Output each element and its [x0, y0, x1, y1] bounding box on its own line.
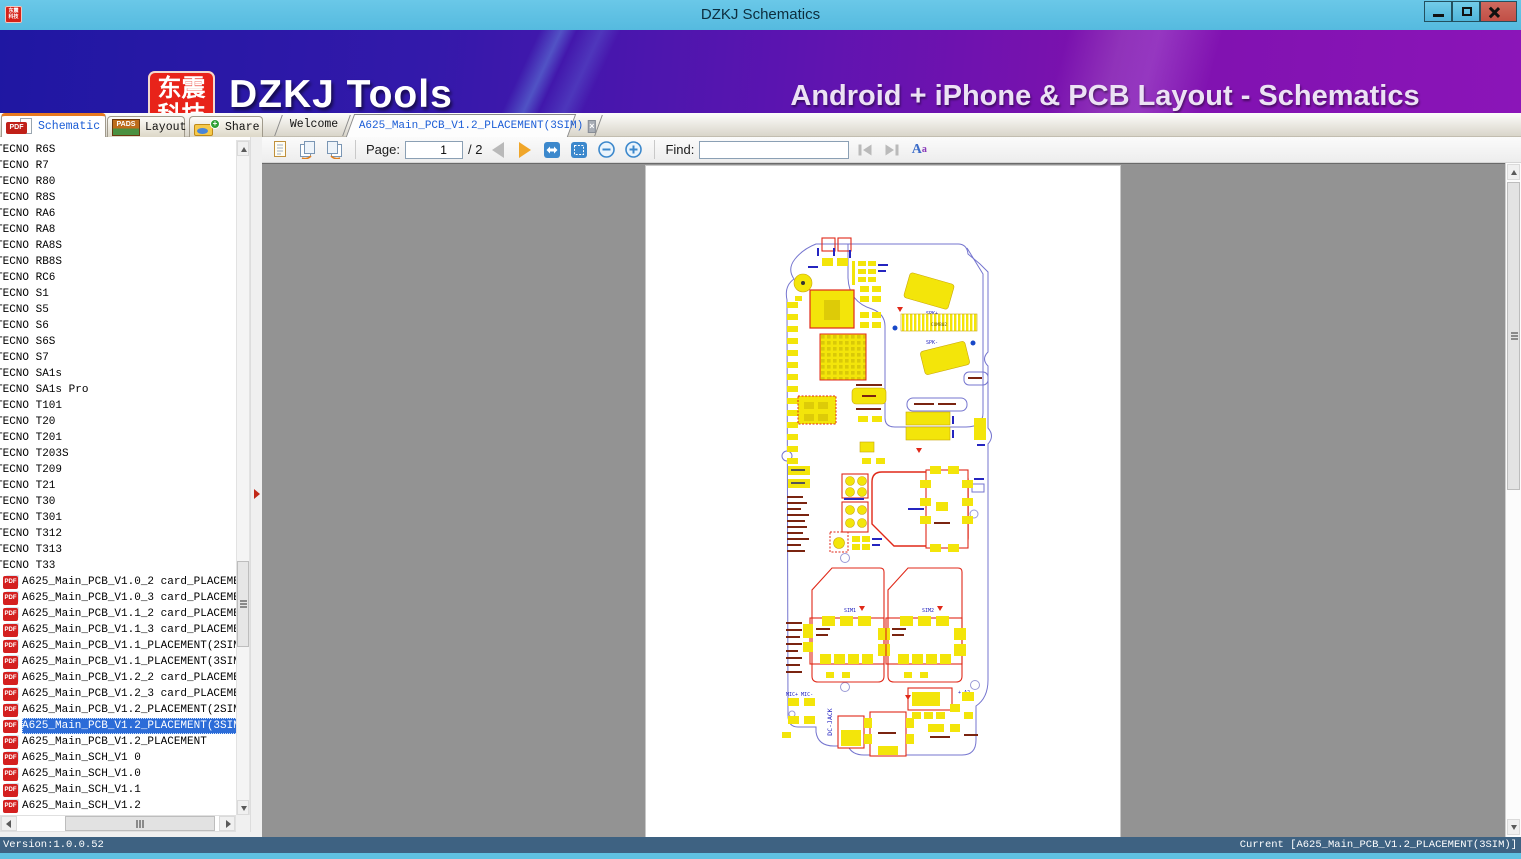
sidebar-item[interactable]: TECNO R6S	[0, 142, 236, 158]
sidebar-item[interactable]: TECNO T203S	[0, 446, 236, 462]
doc-tab-close-icon[interactable]: ×	[588, 120, 595, 133]
sidebar-item-label: A625_Main_PCB_V1.2_PLACEMENT	[22, 734, 207, 750]
prev-page-icon	[492, 142, 504, 158]
sidebar-item[interactable]: TECNO T201	[0, 430, 236, 446]
sidebar-item[interactable]: TECNO S6S	[0, 334, 236, 350]
single-page-icon[interactable]	[269, 139, 291, 161]
pcb-sim-slots: SIM1 SIM2	[786, 568, 966, 682]
sidebar-item-label: A625_Main_PCB_V1.2_PLACEMENT(3SIM)	[22, 718, 236, 734]
page-label: Page:	[366, 142, 400, 157]
sidebar-item-label: TECNO S1	[0, 286, 49, 302]
arrow-left-icon	[6, 820, 11, 828]
sidebar-item[interactable]: PDFA625_Main_SCH_V1.0	[0, 766, 236, 782]
pdf-file-icon: PDF	[3, 736, 18, 749]
sidebar-item[interactable]: TECNO RA8S	[0, 238, 236, 254]
scrollbar-thumb[interactable]	[237, 561, 249, 647]
svg-text:MIC+ MIC-: MIC+ MIC-	[786, 692, 813, 698]
sidebar-item-label: TECNO T313	[0, 542, 62, 558]
sidebar-item[interactable]: TECNO RA8	[0, 222, 236, 238]
viewer-vertical-scrollbar[interactable]	[1505, 163, 1521, 837]
find-next-icon[interactable]	[881, 139, 903, 161]
pdf-file-icon: PDF	[3, 624, 18, 637]
svg-text:DC-JACK: DC-JACK	[826, 708, 834, 735]
pads-icon: PADS	[112, 119, 140, 136]
arrow-right-icon	[226, 820, 231, 828]
sidebar-item[interactable]: TECNO T21	[0, 478, 236, 494]
sidebar-item-label: A625_Main_PCB_V1.2_PLACEMENT(2SIM)	[22, 702, 236, 718]
pdf-file-icon: PDF	[3, 800, 18, 813]
version-label: Version:1.0.0.52	[3, 837, 104, 853]
sidebar-item-label: TECNO T312	[0, 526, 62, 542]
page-copy-right-icon[interactable]	[323, 139, 345, 161]
sidebar-item-label: TECNO RC6	[0, 270, 55, 286]
sidebar-item-label: A625_Main_PCB_V1.1_PLACEMENT(2SIM)	[22, 638, 236, 654]
svg-text:SPK-: SPK-	[926, 340, 938, 346]
sidebar-item[interactable]: PDFA625_Main_PCB_V1.2_PLACEMENT(2SIM)	[0, 702, 236, 718]
sidebar-item-label: A625_Main_PCB_V1.1_2 card_PLACEMENT	[22, 606, 236, 622]
svg-text:SIM2: SIM2	[922, 608, 934, 614]
sidebar-item[interactable]: TECNO S6	[0, 318, 236, 334]
pdf-file-icon: PDF	[3, 672, 18, 685]
pdf-file-icon: PDF	[3, 688, 18, 701]
scroll-up-button[interactable]	[1507, 164, 1520, 180]
header-banner: 东震科技 DZKJ Tools Android + iPhone & PCB L…	[0, 30, 1521, 113]
collapse-arrow-icon	[254, 489, 260, 499]
fit-width-button[interactable]	[541, 139, 563, 161]
sidebar-item[interactable]: PDFA625_Main_PCB_V1.0_2 card_PLACEMENT	[0, 574, 236, 590]
sidebar-item-label: TECNO T203S	[0, 446, 69, 462]
find-label: Find:	[665, 142, 694, 157]
sidebar-item-label: TECNO T201	[0, 430, 62, 446]
sidebar-item-label: TECNO S5	[0, 302, 49, 318]
next-page-button[interactable]	[514, 139, 536, 161]
sidebar-item[interactable]: TECNO RA6	[0, 206, 236, 222]
sidebar-item-label: TECNO T20	[0, 414, 55, 430]
sidebar-horizontal-scrollbar[interactable]	[0, 815, 236, 832]
maximize-button[interactable]	[1452, 1, 1480, 22]
sidebar-item[interactable]: TECNO RC6	[0, 270, 236, 286]
sidebar-item[interactable]: PDFA625_Main_SCH_V1 0	[0, 750, 236, 766]
zoom-in-button[interactable]	[622, 139, 644, 161]
scroll-up-button[interactable]	[237, 141, 249, 156]
sidebar-item-label: A625_Main_PCB_V1.2_2 card_PLACEMENT	[22, 670, 236, 686]
sidebar-item-label: TECNO SA1s	[0, 366, 62, 382]
sidebar-item-label: TECNO RB8S	[0, 254, 62, 270]
svg-text:SIM1: SIM1	[844, 608, 856, 614]
sidebar-item-label: TECNO S6S	[0, 334, 55, 350]
sidebar-item-label: A625_Main_PCB_V1.0_2 card_PLACEMENT	[22, 574, 236, 590]
sidebar-item[interactable]: TECNO R7	[0, 158, 236, 174]
pdf-file-icon: PDF	[3, 768, 18, 781]
pdf-file-icon: PDF	[3, 576, 18, 589]
sidebar-item-label: TECNO T33	[0, 558, 55, 574]
sidebar-item-label: TECNO T101	[0, 398, 62, 414]
next-page-icon	[519, 142, 531, 158]
pdf-file-icon: PDF	[3, 752, 18, 765]
sidebar-item[interactable]: TECNO T209	[0, 462, 236, 478]
sidebar-item[interactable]: TECNO SA1s Pro	[0, 382, 236, 398]
pdf-file-icon: PDF	[3, 720, 18, 733]
match-case-icon[interactable]: Aa	[908, 139, 930, 161]
find-previous-icon[interactable]	[854, 139, 876, 161]
arrow-down-icon	[241, 806, 247, 811]
scroll-right-button[interactable]	[219, 816, 235, 831]
pcb-bottom-components: MIC+ MIC- DC-JACK + A2	[782, 688, 978, 756]
sidebar-item[interactable]: TECNO S5	[0, 302, 236, 318]
fit-page-button[interactable]	[568, 139, 590, 161]
scroll-down-button[interactable]	[237, 800, 249, 815]
doc-tab-welcome[interactable]: Welcome	[284, 118, 344, 131]
arrow-down-icon	[1511, 825, 1517, 830]
tab-schematic[interactable]: PDF Schematic	[1, 113, 106, 137]
sidebar-item-label: TECNO R6S	[0, 142, 55, 158]
sidebar-item[interactable]: PDFA625_Main_PCB_V1.2_2 card_PLACEMENT	[0, 670, 236, 686]
tab-separator	[274, 115, 283, 136]
pdf-file-icon: PDF	[3, 656, 18, 669]
sidebar-item[interactable]: PDFA625_Main_PCB_V1.2_PLACEMENT(3SIM)	[0, 718, 236, 734]
pcb-middle-connectors	[787, 448, 984, 552]
pcb-chips	[798, 286, 988, 464]
sidebar-item-label: A625_Main_SCH_V1.2	[22, 798, 141, 814]
doc-tab-label: A625_Main_PCB_V1.2_PLACEMENT(3SIM)	[359, 120, 583, 132]
tab-share[interactable]: + Share	[189, 116, 263, 137]
document-viewer[interactable]: SPK+ COMB02 SPK-	[262, 163, 1505, 837]
sidebar-item-label: A625_Main_PCB_V1.0_3 card_PLACEMENT	[22, 590, 236, 606]
sidebar-item[interactable]: PDFA625_Main_PCB_V1.1_3 card_PLACEMENT	[0, 622, 236, 638]
sidebar-item[interactable]: TECNO R80	[0, 174, 236, 190]
find-input[interactable]	[699, 141, 849, 159]
sidebar-item[interactable]: PDFA625_Main_PCB_V1.1_2 card_PLACEMENT	[0, 606, 236, 622]
page-total: / 2	[468, 142, 482, 157]
scrollbar-corner	[236, 815, 250, 832]
scroll-down-button[interactable]	[1507, 819, 1520, 835]
pdf-file-icon: PDF	[3, 592, 18, 605]
pcb-diagram: SPK+ COMB02 SPK-	[646, 166, 1120, 837]
pdf-file-icon: PDF	[3, 704, 18, 717]
title-bar: 东震科技 DZKJ Schematics	[0, 0, 1521, 30]
minimize-button[interactable]	[1424, 1, 1452, 22]
scrollbar-thumb[interactable]	[65, 816, 215, 831]
file-list-panel: TECNO R6STECNO R7TECNO R80TECNO R8STECNO…	[0, 137, 250, 832]
doc-tab-active[interactable]: A625_Main_PCB_V1.2_PLACEMENT(3SIM) ×	[346, 114, 576, 137]
window-border	[0, 853, 1521, 859]
status-bar: Version:1.0.0.52 Current [A625_Main_PCB_…	[0, 837, 1521, 853]
sidebar-item[interactable]: TECNO S1	[0, 286, 236, 302]
sidebar-item-label: TECNO S6	[0, 318, 49, 334]
panel-splitter[interactable]	[250, 137, 262, 837]
sidebar-item[interactable]: PDFA625_Main_PCB_V1.0_3 card_PLACEMENT	[0, 590, 236, 606]
tab-layout-label: Layout	[145, 121, 186, 134]
pdf-icon: PDF	[6, 118, 33, 135]
sidebar-item-label: A625_Main_SCH_V1.1	[22, 782, 141, 798]
sidebar-item[interactable]: TECNO T313	[0, 542, 236, 558]
sidebar-item[interactable]: PDFA625_Main_PCB_V1.2_PLACEMENT	[0, 734, 236, 750]
sidebar-item[interactable]: TECNO R8S	[0, 190, 236, 206]
toolbar-separator	[355, 140, 356, 159]
sidebar-item-label: TECNO T209	[0, 462, 62, 478]
sidebar-vertical-scrollbar[interactable]	[236, 140, 250, 816]
sidebar-item-label: TECNO R80	[0, 174, 55, 190]
sidebar-item-label: TECNO R8S	[0, 190, 55, 206]
sidebar-item[interactable]: TECNO T101	[0, 398, 236, 414]
sidebar-item-label: TECNO RA6	[0, 206, 55, 222]
company-logo: 东震科技	[148, 71, 215, 113]
sidebar-item[interactable]: PDFA625_Main_PCB_V1.2_3 card_PLACEMENT	[0, 686, 236, 702]
pdf-page: SPK+ COMB02 SPK-	[646, 166, 1120, 837]
sidebar-item[interactable]: TECNO T30	[0, 494, 236, 510]
sidebar-item[interactable]: TECNO SA1s	[0, 366, 236, 382]
maximize-icon	[1462, 7, 1472, 16]
sidebar-item[interactable]: TECNO RB8S	[0, 254, 236, 270]
sidebar-item[interactable]: TECNO T20	[0, 414, 236, 430]
sidebar-item[interactable]: PDFA625_Main_SCH_V1.2	[0, 798, 236, 814]
prev-page-button[interactable]	[487, 139, 509, 161]
scrollbar-thumb[interactable]	[1507, 182, 1520, 490]
banner-streak	[420, 30, 680, 113]
pdf-file-icon: PDF	[3, 608, 18, 621]
sidebar-item-label: TECNO S7	[0, 350, 49, 366]
sidebar-item-label: TECNO T301	[0, 510, 62, 526]
minimize-icon	[1433, 14, 1444, 17]
sidebar-item-label: A625_Main_PCB_V1.2_3 card_PLACEMENT	[22, 686, 236, 702]
arrow-up-icon	[241, 147, 247, 152]
banner-tagline: Android + iPhone & PCB Layout - Schemati…	[790, 80, 1420, 113]
tab-bar: PDF Schematic PADS Layout + Share Welcom…	[0, 113, 1521, 137]
sidebar-item-label: TECNO RA8S	[0, 238, 62, 254]
sidebar-item-label: A625_Main_SCH_V1 0	[22, 750, 141, 766]
viewer-toolbar: Page: / 2 Find: Aa	[262, 137, 1521, 163]
sidebar-item-label: TECNO SA1s Pro	[0, 382, 88, 398]
current-file-label: Current [A625_Main_PCB_V1.2_PLACEMENT(3S…	[1240, 837, 1517, 853]
brand-title: DZKJ Tools	[229, 73, 453, 113]
share-folder-icon: +	[194, 119, 220, 136]
pdf-file-icon: PDF	[3, 640, 18, 653]
tab-share-label: Share	[225, 121, 260, 134]
sidebar-item[interactable]: PDFA625_Main_PCB_V1.1_PLACEMENT(2SIM)	[0, 638, 236, 654]
sidebar-list: TECNO R6STECNO R7TECNO R80TECNO R8STECNO…	[0, 142, 236, 815]
tab-layout[interactable]: PADS Layout	[107, 116, 185, 137]
svg-text:COMB02: COMB02	[931, 322, 948, 328]
sidebar-item-label: TECNO RA8	[0, 222, 55, 238]
sidebar-item-label: TECNO T21	[0, 478, 55, 494]
sidebar-item[interactable]: TECNO S7	[0, 350, 236, 366]
sidebar-item[interactable]: TECNO T301	[0, 510, 236, 526]
sidebar-item[interactable]: PDFA625_Main_SCH_V1.1	[0, 782, 236, 798]
sidebar-item-label: TECNO R7	[0, 158, 49, 174]
zoom-out-button[interactable]	[595, 139, 617, 161]
arrow-up-icon	[1511, 170, 1517, 175]
sidebar-item-label: A625_Main_PCB_V1.1_PLACEMENT(3SIM)	[22, 654, 236, 670]
app-window: 东震科技 DZKJ Schematics 东震科技 DZKJ Tools And…	[0, 0, 1521, 859]
toolbar-separator	[654, 140, 655, 159]
page-copy-left-icon[interactable]	[296, 139, 318, 161]
sidebar-item[interactable]: PDFA625_Main_PCB_V1.1_PLACEMENT(3SIM)	[0, 654, 236, 670]
sidebar-item-label: A625_Main_SCH_V1.0	[22, 766, 141, 782]
tab-schematic-label: Schematic	[38, 120, 100, 133]
close-button[interactable]	[1480, 1, 1517, 22]
pdf-file-icon: PDF	[3, 784, 18, 797]
pcb-left-pads	[787, 302, 798, 464]
window-title: DZKJ Schematics	[0, 6, 1521, 23]
sidebar-item[interactable]: TECNO T312	[0, 526, 236, 542]
page-number-input[interactable]	[405, 141, 463, 159]
scroll-left-button[interactable]	[1, 816, 17, 831]
sidebar-item-label: A625_Main_PCB_V1.1_3 card_PLACEMENT	[22, 622, 236, 638]
sidebar-item-label: TECNO T30	[0, 494, 55, 510]
sidebar-item[interactable]: TECNO T33	[0, 558, 236, 574]
